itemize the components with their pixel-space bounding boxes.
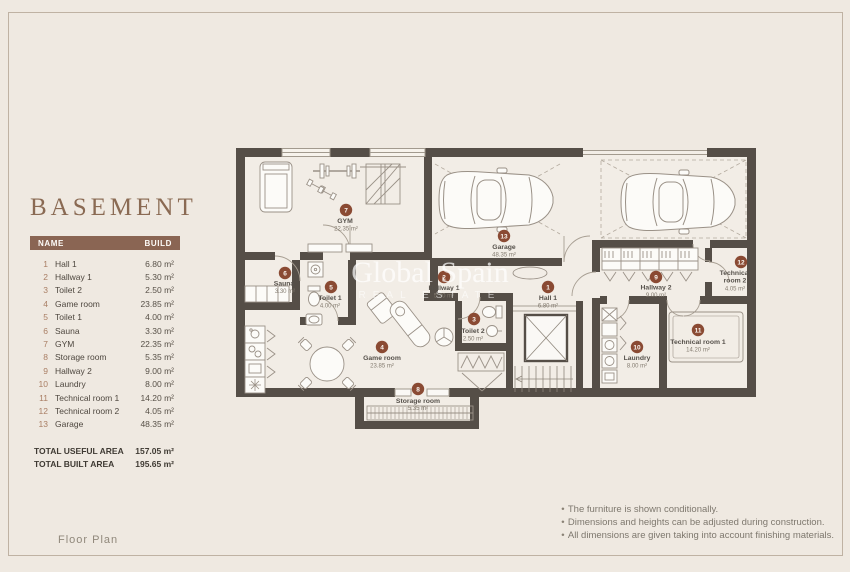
- svg-text:Garage: Garage: [492, 244, 516, 251]
- svg-text:22.35 m²: 22.35 m²: [334, 227, 358, 233]
- svg-text:5.35 m²: 5.35 m²: [408, 406, 428, 412]
- car-icon: [439, 168, 553, 232]
- svg-text:Toilet 2: Toilet 2: [461, 328, 485, 335]
- table-header: NAME BUILD: [30, 236, 180, 250]
- table-row: 12Technical room 24.05 m²: [30, 404, 180, 417]
- svg-text:5: 5: [329, 284, 333, 291]
- treadmill-icon: [260, 162, 292, 212]
- table-row: 11Technical room 114.20 m²: [30, 391, 180, 404]
- svg-text:Storage room: Storage room: [396, 398, 440, 405]
- washer-icon: [308, 262, 323, 277]
- table-row: 4Game room23.85 m²: [30, 297, 180, 310]
- room-number: 7: [34, 339, 48, 349]
- table-row: 13Garage48.35 m²: [30, 418, 180, 431]
- bullet: •: [558, 529, 568, 542]
- floor-plan-svg: 1Hall 16.80 m² 2Hallway 15.30 m² 3Toilet…: [230, 140, 760, 436]
- room-build-area: 4.00 m²: [145, 312, 174, 322]
- room-name: Laundry: [55, 379, 138, 389]
- table-row: 1Hall 16.80 m²: [30, 257, 180, 270]
- table-row: 10Laundry8.00 m²: [30, 378, 180, 391]
- table-row: 2Hallway 15.30 m²: [30, 270, 180, 283]
- total-useful-row: TOTAL USEFUL AREA 157.05 m²: [30, 444, 180, 457]
- note-item: •The furniture is shown conditionally.: [558, 503, 834, 516]
- bullet: •: [558, 503, 568, 516]
- svg-text:10: 10: [633, 344, 641, 351]
- svg-text:8.00 m²: 8.00 m²: [627, 364, 647, 370]
- table-row: 9Hallway 29.00 m²: [30, 364, 180, 377]
- room-build-area: 22.35 m²: [140, 339, 174, 349]
- washer-icon: [602, 338, 617, 352]
- svg-text:Sauna: Sauna: [274, 281, 295, 288]
- room-name: Toilet 1: [55, 312, 138, 322]
- svg-text:Toilet 1: Toilet 1: [318, 295, 342, 302]
- room-build-area: 9.00 m²: [145, 366, 174, 376]
- room-name: Garage: [55, 419, 133, 429]
- room-name: Hallway 1: [55, 272, 138, 282]
- svg-text:4.00 m²: 4.00 m²: [320, 304, 340, 310]
- room-name: Hallway 2: [55, 366, 138, 376]
- svg-text:4: 4: [380, 344, 384, 351]
- room-number: 5: [34, 312, 48, 322]
- svg-text:12: 12: [737, 259, 745, 266]
- svg-text:9: 9: [654, 274, 658, 281]
- room-number: 8: [34, 352, 48, 362]
- total-useful-value: 157.05 m²: [135, 446, 174, 456]
- svg-text:23.85 m²: 23.85 m²: [370, 364, 394, 370]
- room-build-area: 5.35 m²: [145, 352, 174, 362]
- build-column-header: BUILD: [145, 239, 172, 248]
- floor-plan-sheet: BASEMENT NAME BUILD 1Hall 16.80 m² 2Hall…: [0, 0, 850, 572]
- room-build-area: 6.80 m²: [145, 259, 174, 269]
- room-name: GYM: [55, 339, 133, 349]
- note-text: The furniture is shown conditionally.: [568, 504, 718, 515]
- toilet-icon: [483, 306, 503, 318]
- room-number: 12: [34, 406, 48, 416]
- total-built-row: TOTAL BUILT AREA 195.65 m²: [30, 457, 180, 470]
- room-number: 2: [34, 272, 48, 282]
- svg-text:7: 7: [344, 207, 348, 214]
- svg-text:Technical room 1: Technical room 1: [670, 339, 726, 346]
- svg-text:9.00 m²: 9.00 m²: [646, 293, 666, 299]
- floor-plan-drawing: 1Hall 16.80 m² 2Hallway 15.30 m² 3Toilet…: [230, 140, 760, 436]
- svg-text:GYM: GYM: [337, 218, 353, 225]
- table-row: 8Storage room5.35 m²: [30, 351, 180, 364]
- svg-text:Hall 1: Hall 1: [539, 295, 557, 302]
- svg-text:Technical: Technical: [720, 270, 751, 277]
- room-number: 6: [34, 326, 48, 336]
- table-row: 3Toilet 22.50 m²: [30, 284, 180, 297]
- table-row: 6Sauna3.30 m²: [30, 324, 180, 337]
- svg-text:2.50 m²: 2.50 m²: [463, 337, 483, 343]
- svg-text:14.20 m²: 14.20 m²: [686, 348, 710, 354]
- total-built-label: TOTAL BUILT AREA: [34, 459, 114, 469]
- gym-bench-icon: [308, 244, 372, 252]
- page-title: BASEMENT: [30, 194, 180, 222]
- room-number: 11: [34, 393, 48, 403]
- table-row: 5Toilet 14.00 m²: [30, 311, 180, 324]
- note-item: •Dimensions and heights can be adjusted …: [558, 516, 834, 529]
- room-name: Sauna: [55, 326, 138, 336]
- room-build-area: 48.35 m²: [140, 419, 174, 429]
- room-name: Technical room 1: [55, 393, 133, 403]
- svg-text:13: 13: [500, 233, 508, 240]
- car-icon: [621, 170, 735, 234]
- svg-text:5.30 m²: 5.30 m²: [434, 294, 454, 300]
- svg-text:1: 1: [546, 284, 550, 291]
- svg-text:11: 11: [695, 327, 702, 334]
- room-build-area: 4.05 m²: [145, 406, 174, 416]
- bullet: •: [558, 516, 568, 529]
- svg-text:Hallway 1: Hallway 1: [429, 285, 460, 292]
- room-number: 3: [34, 285, 48, 295]
- stool-icon: [435, 328, 453, 346]
- svg-text:3: 3: [472, 316, 476, 323]
- room-number: 13: [34, 419, 48, 429]
- svg-text:Game room: Game room: [363, 355, 401, 362]
- room-schedule-sidebar: BASEMENT NAME BUILD 1Hall 16.80 m² 2Hall…: [30, 194, 180, 470]
- table-row: 7GYM22.35 m²: [30, 337, 180, 350]
- room-number: 1: [34, 259, 48, 269]
- room-build-area: 23.85 m²: [140, 299, 174, 309]
- totals-block: TOTAL USEFUL AREA 157.05 m² TOTAL BUILT …: [30, 444, 180, 470]
- svg-text:3.30 m²: 3.30 m²: [275, 289, 295, 295]
- floor-plan-label: Floor Plan: [58, 534, 118, 546]
- room-name: Technical room 2: [55, 406, 138, 416]
- svg-text:2: 2: [442, 274, 446, 281]
- room-number: 10: [34, 379, 48, 389]
- svg-text:8: 8: [416, 386, 420, 393]
- sink-icon: [306, 314, 322, 325]
- note-text: Dimensions and heights can be adjusted d…: [568, 517, 825, 528]
- washer-icon: [602, 354, 617, 368]
- svg-text:room 2: room 2: [724, 278, 747, 285]
- note-item: •All dimensions are given taking into ac…: [558, 529, 834, 542]
- total-useful-label: TOTAL USEFUL AREA: [34, 446, 124, 456]
- room-number: 4: [34, 299, 48, 309]
- room-name: Storage room: [55, 352, 138, 362]
- svg-text:4.05 m²: 4.05 m²: [725, 287, 745, 293]
- svg-text:6: 6: [283, 270, 287, 277]
- room-number: 9: [34, 366, 48, 376]
- room-name: Hall 1: [55, 259, 138, 269]
- svg-text:Laundry: Laundry: [624, 355, 651, 362]
- name-column-header: NAME: [38, 239, 64, 248]
- room-build-area: 14.20 m²: [140, 393, 174, 403]
- room-name: Toilet 2: [55, 285, 138, 295]
- room-name: Game room: [55, 299, 133, 309]
- room-build-area: 3.30 m²: [145, 326, 174, 336]
- notes: •The furniture is shown conditionally. •…: [558, 503, 834, 542]
- rooms-table: 1Hall 16.80 m² 2Hallway 15.30 m² 3Toilet…: [30, 257, 180, 431]
- svg-text:Hallway 2: Hallway 2: [641, 285, 672, 292]
- room-build-area: 8.00 m²: [145, 379, 174, 389]
- note-text: All dimensions are given taking into acc…: [568, 530, 834, 541]
- room-build-area: 5.30 m²: [145, 272, 174, 282]
- room-build-area: 2.50 m²: [145, 285, 174, 295]
- svg-text:6.80 m²: 6.80 m²: [538, 304, 558, 310]
- svg-text:48.35 m²: 48.35 m²: [492, 253, 516, 259]
- total-built-value: 195.65 m²: [135, 459, 174, 469]
